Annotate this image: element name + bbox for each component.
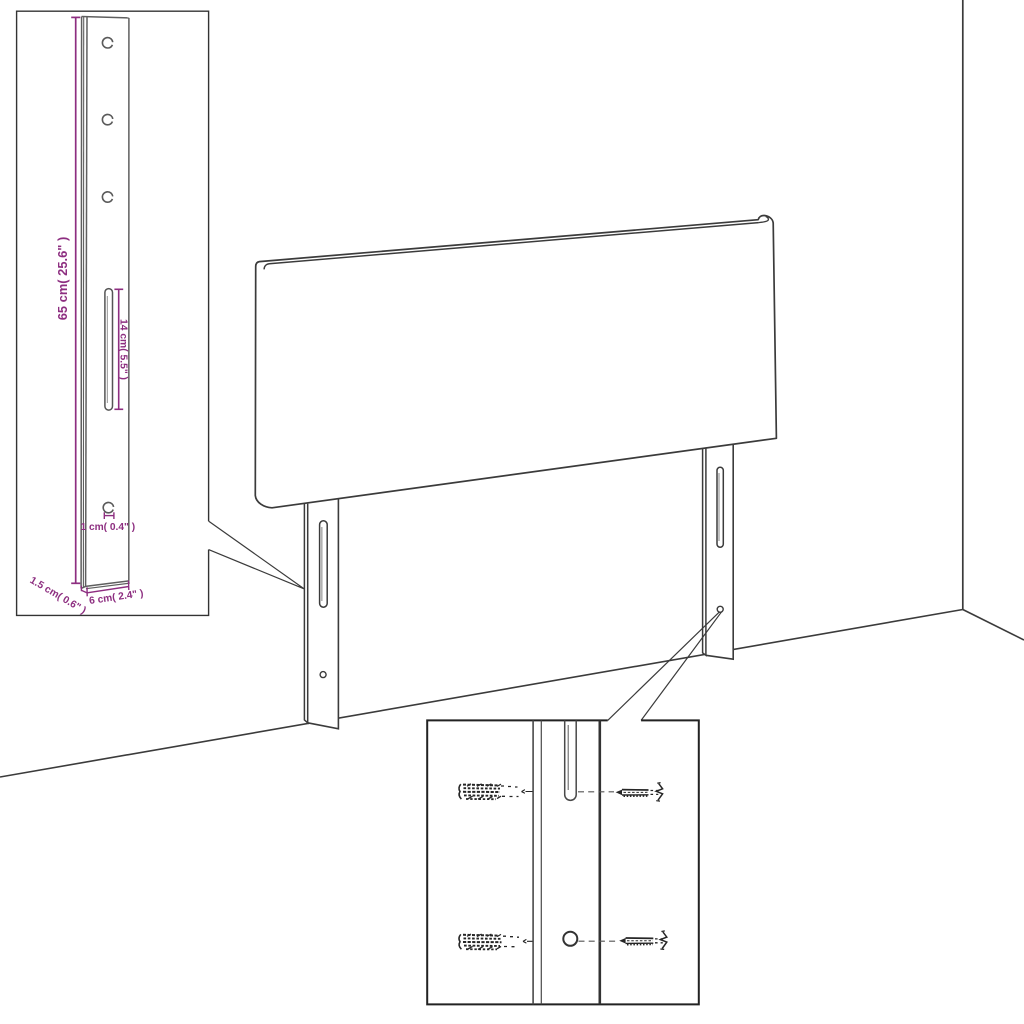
svg-text:1 cm( 0.4" ): 1 cm( 0.4" ) — [80, 522, 135, 533]
svg-text:14 cm( 5.5" ): 14 cm( 5.5" ) — [118, 319, 129, 380]
svg-text:65 cm( 25.6" ): 65 cm( 25.6" ) — [55, 237, 70, 321]
